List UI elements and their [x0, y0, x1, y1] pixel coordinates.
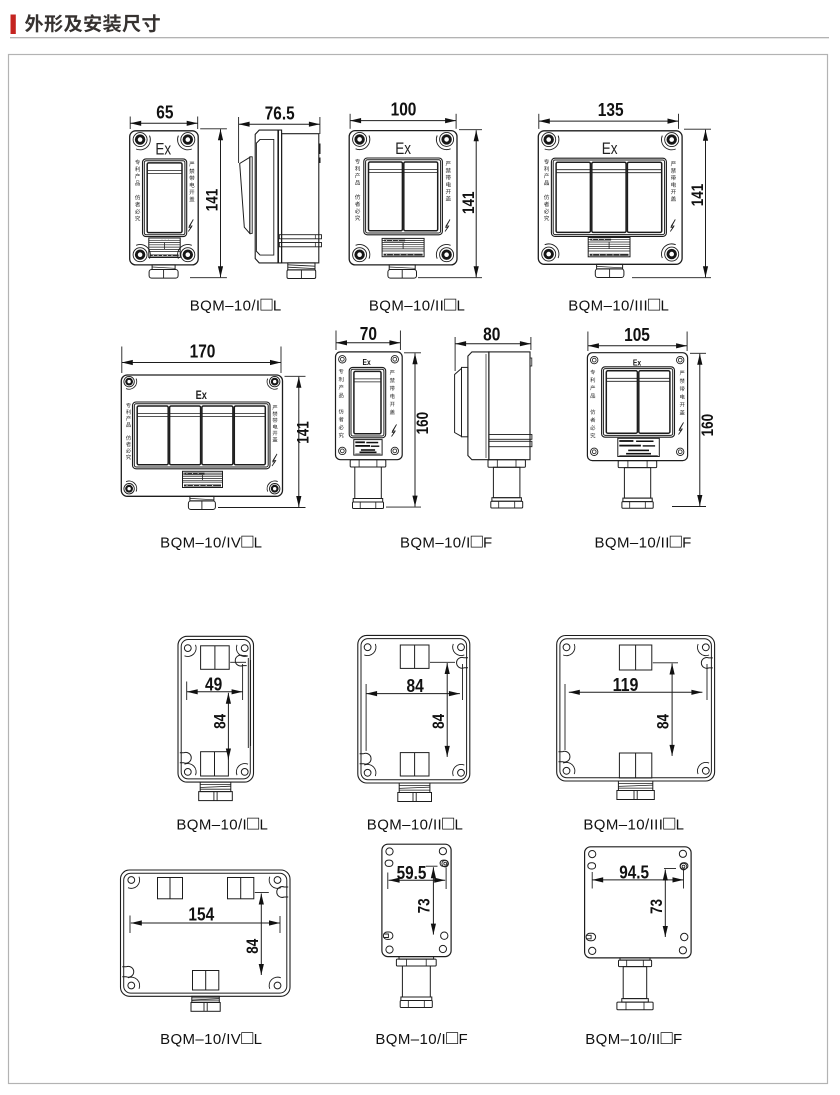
svg-text:BQM–10/II□L: BQM–10/II□L [367, 813, 463, 835]
svg-text:BQM–10/III□L: BQM–10/III□L [583, 813, 684, 835]
svg-text:Ex: Ex [196, 388, 208, 402]
svg-text:141: 141 [294, 421, 313, 444]
svg-text:141: 141 [459, 192, 478, 215]
svg-text:160: 160 [698, 414, 717, 437]
svg-text:70: 70 [360, 323, 377, 344]
svg-text:154: 154 [188, 903, 214, 924]
svg-text:BQM–10/I□F: BQM–10/I□F [400, 531, 493, 553]
svg-text:84: 84 [243, 938, 262, 953]
svg-text:141: 141 [202, 189, 221, 212]
svg-text:Ex: Ex [602, 139, 618, 158]
svg-text:135: 135 [598, 99, 624, 120]
svg-text:Ex: Ex [155, 139, 171, 158]
svg-text:80: 80 [483, 324, 500, 345]
svg-text:94.5: 94.5 [619, 862, 649, 883]
svg-text:84: 84 [429, 713, 448, 728]
svg-text:BQM–10/IV□L: BQM–10/IV□L [160, 531, 262, 553]
svg-text:BQM–10/II□F: BQM–10/II□F [594, 531, 691, 553]
svg-text:Ex: Ex [363, 357, 371, 367]
svg-text:Ex: Ex [395, 139, 411, 158]
svg-text:119: 119 [613, 674, 639, 695]
svg-text:BQM–10/II□F: BQM–10/II□F [585, 1027, 682, 1049]
svg-text:100: 100 [391, 98, 417, 119]
svg-text:BQM–10/III□L: BQM–10/III□L [568, 294, 669, 316]
svg-text:141: 141 [688, 184, 707, 207]
svg-text:BQM–10/I□L: BQM–10/I□L [176, 813, 268, 835]
svg-text:49: 49 [205, 673, 222, 694]
svg-text:160: 160 [413, 412, 432, 435]
svg-text:BQM–10/IV□L: BQM–10/IV□L [160, 1027, 262, 1049]
svg-text:73: 73 [415, 898, 434, 913]
svg-text:Ex: Ex [633, 357, 641, 367]
svg-text:73: 73 [647, 899, 666, 914]
svg-text:84: 84 [211, 713, 230, 728]
svg-text:65: 65 [156, 102, 173, 123]
svg-text:84: 84 [654, 714, 673, 729]
svg-text:59.5: 59.5 [397, 862, 427, 883]
svg-text:BQM–10/II□L: BQM–10/II□L [369, 294, 465, 316]
svg-text:76.5: 76.5 [265, 102, 295, 123]
svg-text:105: 105 [624, 324, 650, 345]
svg-text:BQM–10/I□F: BQM–10/I□F [375, 1027, 468, 1049]
svg-text:BQM–10/I□L: BQM–10/I□L [190, 294, 282, 316]
svg-text:170: 170 [190, 341, 216, 362]
svg-text:84: 84 [407, 675, 425, 696]
